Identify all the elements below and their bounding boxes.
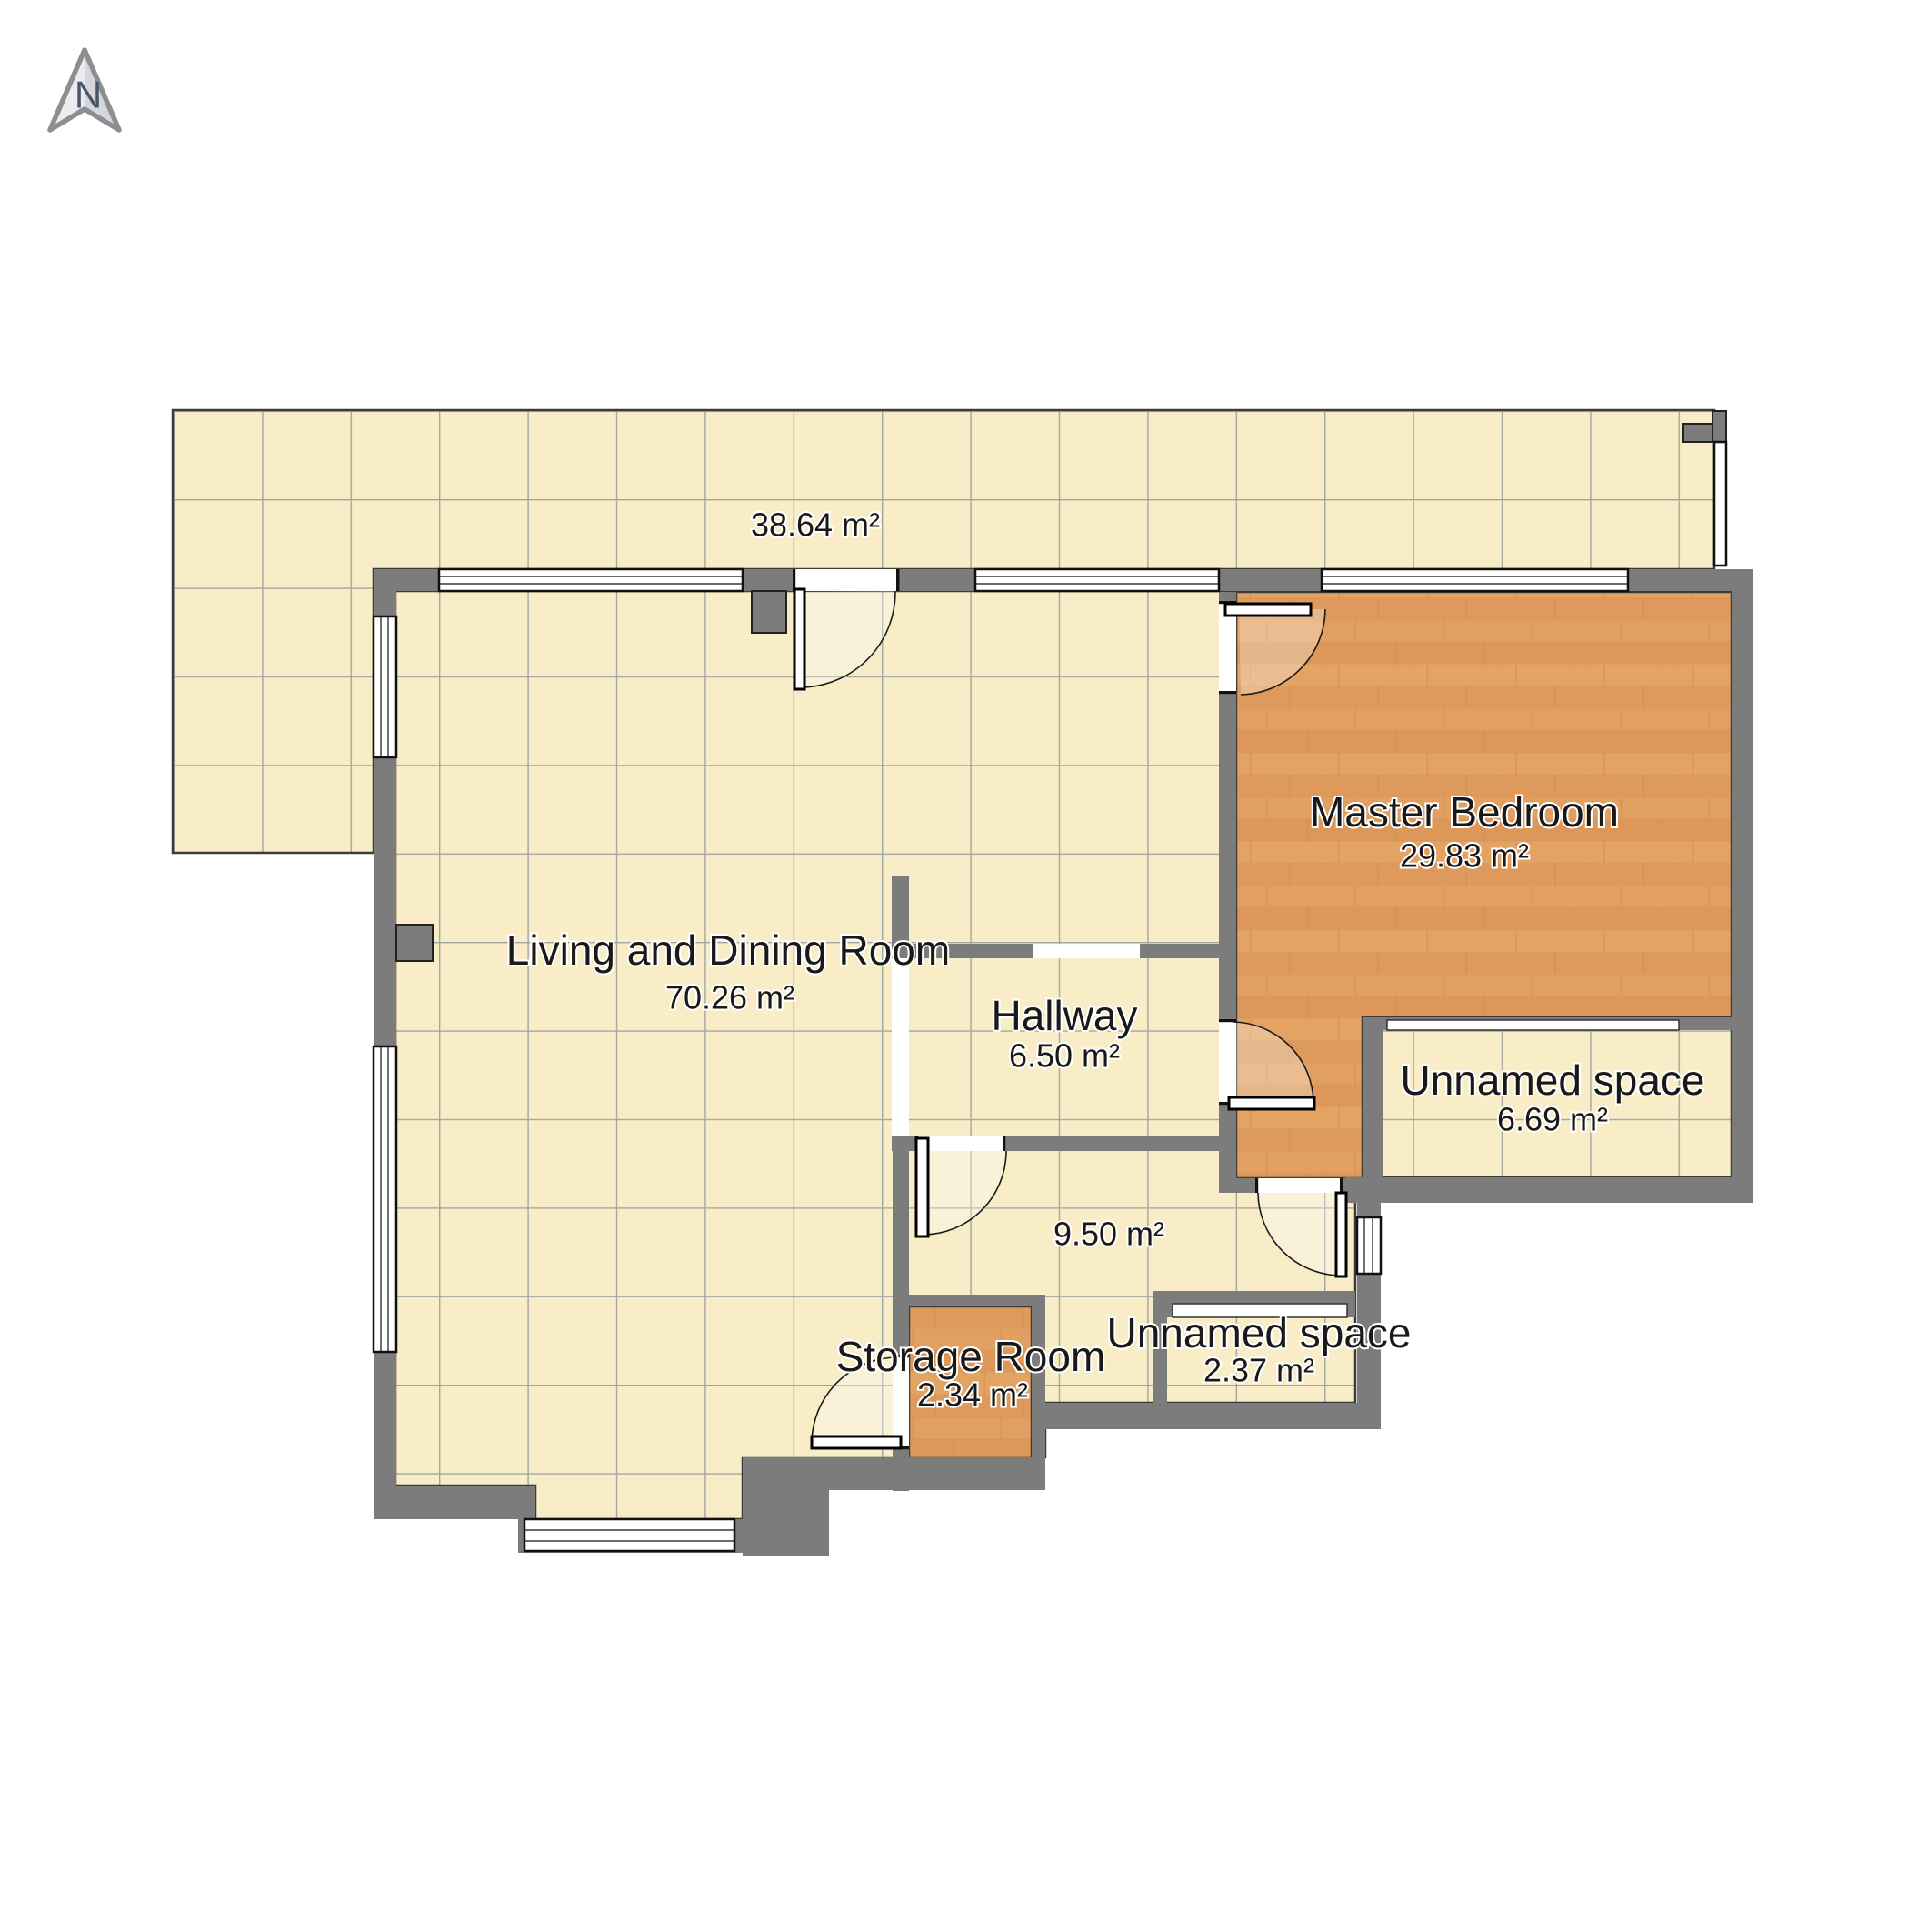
- svg-text:6.69 m²: 6.69 m²: [1497, 1101, 1608, 1138]
- svg-text:Unnamed space: Unnamed space: [1401, 1056, 1705, 1104]
- svg-text:70.26 m²: 70.26 m²: [665, 979, 794, 1016]
- svg-text:Master Bedroom: Master Bedroom: [1310, 788, 1619, 836]
- svg-text:2.34 m²: 2.34 m²: [917, 1376, 1028, 1414]
- svg-text:9.50 m²: 9.50 m²: [1053, 1216, 1164, 1253]
- svg-text:29.83 m²: 29.83 m²: [1400, 837, 1529, 875]
- svg-text:N: N: [75, 74, 102, 116]
- svg-text:6.50 m²: 6.50 m²: [1009, 1037, 1120, 1075]
- svg-text:Unnamed space: Unnamed space: [1107, 1309, 1412, 1356]
- svg-text:Hallway: Hallway: [991, 992, 1137, 1039]
- svg-text:2.37 m²: 2.37 m²: [1203, 1352, 1314, 1389]
- svg-text:Living and Dining Room: Living and Dining Room: [506, 926, 950, 974]
- svg-text:38.64 m²: 38.64 m²: [751, 506, 880, 544]
- svg-text:Storage Room: Storage Room: [836, 1333, 1106, 1380]
